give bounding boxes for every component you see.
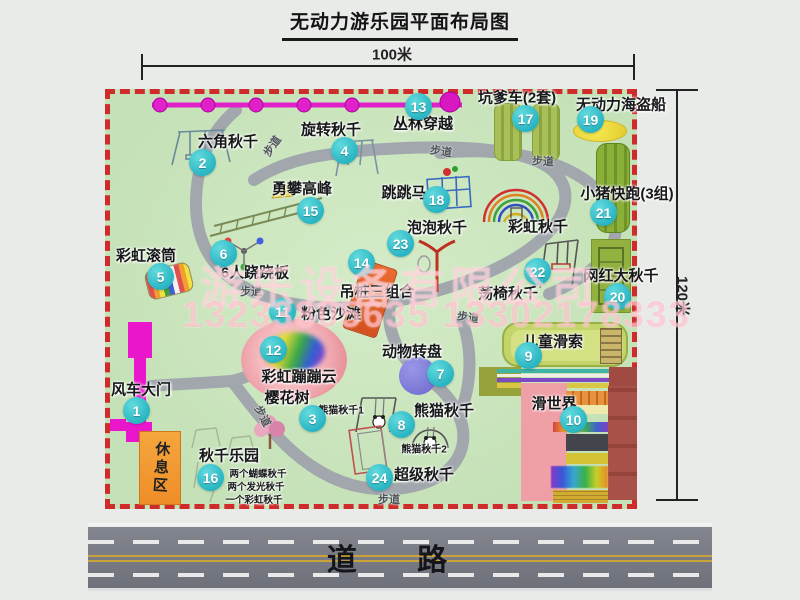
walkway-label-7: 步道 [378,491,400,507]
attraction-badge-24: 24 [366,464,393,491]
attraction-label-4: 旋转秋千 [301,119,361,140]
attraction-badge-3: 3 [299,405,326,432]
slide-rainbow-big [551,466,608,488]
attraction-label-11: 粉色沙滩 [301,303,361,324]
attraction-badge-18: 18 [423,186,450,213]
attraction-label-18: 跳跳马 [381,182,426,203]
attraction-badge-8: 8 [388,411,415,438]
attraction-badge-20: 20 [604,283,631,310]
attraction-badge-7: 7 [427,360,454,387]
attraction-label-12: 彩虹蹦蹦云 [261,366,336,387]
sublabel-swing-note-1: 两个蝴蝶秋千 [229,466,286,480]
height-dimension-label: 120米 [673,276,694,316]
attraction-badge-21: 21 [590,199,617,226]
sublabel-swing-note-2: 两个发光秋千 [227,479,284,493]
attraction-label-3: 樱花树 [264,387,309,408]
walkway-label-3: 步道 [532,152,555,169]
attraction-badge-14: 14 [348,249,375,276]
attraction-label-23: 泡泡秋千 [407,217,467,238]
attraction-label-8: 熊猫秋千 [414,400,474,421]
attraction-badge-13: 13 [405,93,432,120]
windmill-gate-side [110,419,126,431]
attraction-label-7: 动物转盘 [382,341,442,362]
attraction-badge-22: 22 [524,258,551,285]
windmill-gate-top [128,322,152,358]
attraction-badge-16: 16 [197,464,224,491]
sublabel-rainbow-swing: 彩虹秋千 [508,216,568,237]
sublabel-swing-note-3: 一个彩虹秋千 [225,492,282,506]
attraction-label-22: 荡椅秋千 [478,283,538,304]
attraction-label-17: 坑爹车(2套) [478,87,556,108]
width-dimension-label: 100米 [372,44,412,65]
attraction-label-24: 超级秋千 [394,464,454,485]
slide-world-brown-strip [608,386,637,500]
attraction-badge-15: 15 [297,197,324,224]
road: 道 路 [88,527,712,588]
attraction-badge-9: 9 [515,342,542,369]
kids-zipline-ladder [600,328,622,364]
attraction-badge-6: 6 [210,240,237,267]
attraction-label-15: 勇攀高峰 [272,178,332,199]
slide-yellow-band [566,453,608,464]
attraction-badge-17: 17 [512,105,539,132]
attraction-badge-19: 19 [577,106,604,133]
attraction-badge-12: 12 [260,336,287,363]
road-label: 道 路 [327,535,473,579]
walkway-label-2: 步道 [429,142,453,161]
slide-wavy-band [553,490,608,503]
attraction-badge-11: 11 [269,298,296,325]
road-top-edge [88,523,712,526]
rest-area: 休息区 [139,431,181,505]
sublabel-panda-swing-2: 熊猫秋千2 [401,441,447,456]
attraction-badge-2: 2 [189,149,216,176]
walkway-label-4: 步道 [240,283,262,299]
attraction-label-20: 网红大秋千 [583,265,658,286]
attraction-label-2: 六角秋千 [198,131,258,152]
walkway-label-6: 步道 [456,308,480,327]
attraction-badge-4: 4 [331,137,358,164]
road-bottom-edge [88,588,712,591]
rest-area-label: 休息区 [148,440,173,495]
page-title: 无动力游乐园平面布局图 [282,7,518,41]
attraction-label-5: 彩虹滚筒 [116,245,176,266]
attraction-label-16: 秋千乐园 [199,445,259,466]
park-layout-map: 无动力游乐园平面布局图 [0,0,800,600]
attraction-badge-5: 5 [147,263,174,290]
attraction-label-21: 小猪快跑(3组) [580,183,673,204]
attraction-label-14: 吊桩三组合 [339,281,414,302]
attraction-badge-23: 23 [387,230,414,257]
attraction-label-1: 风车大门 [111,379,171,400]
attraction-badge-10: 10 [560,406,587,433]
attraction-badge-1: 1 [123,397,150,424]
slide-dark-band-1 [566,434,608,451]
